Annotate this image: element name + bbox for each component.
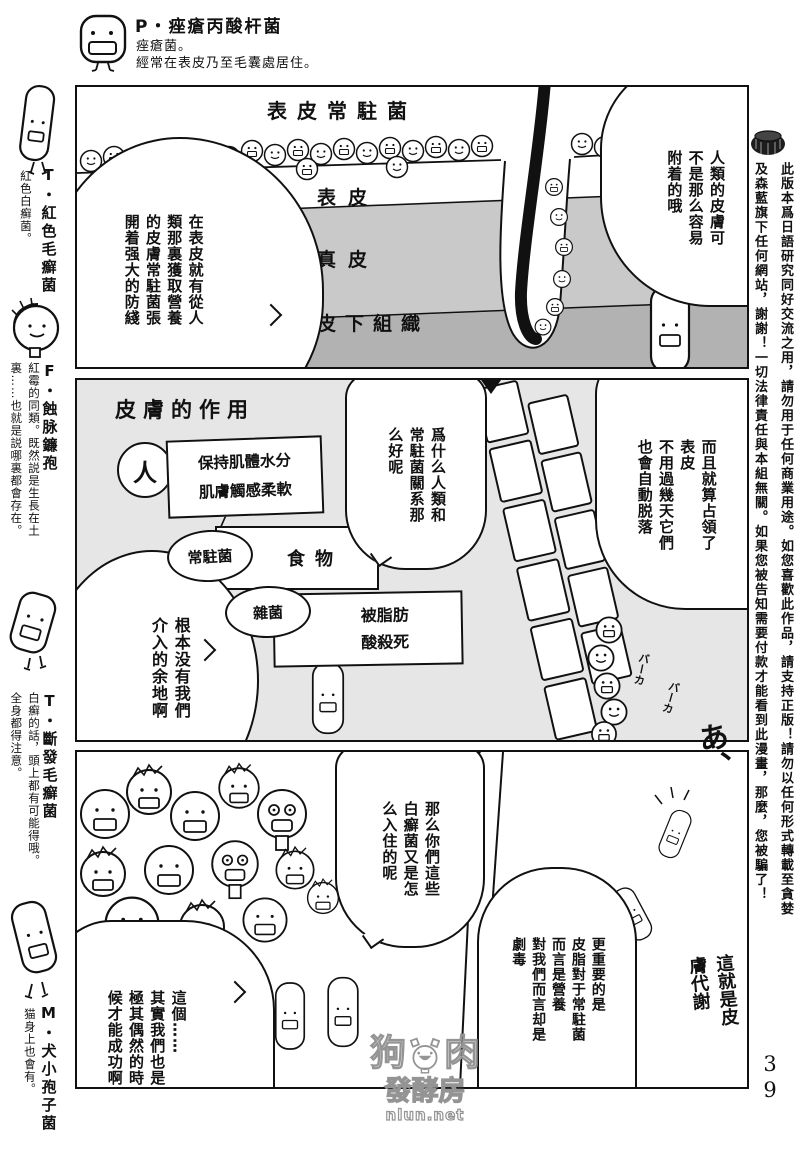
- t-tonsurans-microbe-icon: [8, 590, 60, 672]
- capsule-character: [313, 663, 343, 733]
- mascot-icon: [408, 1032, 442, 1076]
- margin-entry-title: M・犬小孢子菌: [40, 1004, 57, 1154]
- fusarium-microbe-icon: [6, 296, 62, 358]
- watermark-char: 狗: [370, 1036, 406, 1072]
- t-rubrum-microbe-icon: [16, 84, 58, 176]
- manga-page: P・痤瘡丙酸杆菌 痤瘡菌。 經常在表皮乃至毛囊處居住。 T・紅色毛癬菌 紅色白癬…: [0, 0, 800, 1163]
- m-canis-microbe-icon: [10, 896, 60, 1000]
- scanlation-disclaimer: 此版本爲日語研究同好交流之用，請勿用于任何商業用途。如您喜歡此作品，請支持正版！…: [744, 162, 798, 1028]
- label-subcutis: 皮下組織: [317, 309, 429, 336]
- watermark: 狗 肉 發酵房 nlun.net: [370, 1032, 480, 1123]
- label-epidermis: 表皮: [317, 183, 379, 210]
- node-human: 人: [117, 442, 173, 498]
- margin-entry-desc: 猫身上也會有。: [20, 1008, 38, 1138]
- panel-skin-cross-section: 表皮常駐菌 表皮 真皮 皮下組織 在表皮就有從人 類那裏獲取營養 的皮膚常駐菌張…: [75, 85, 749, 369]
- speech-bubble: 更重要的是 皮脂對于常駐菌 而言是營養 對我們而言却是 劇毒: [477, 867, 637, 1089]
- surprise-lines: [655, 787, 689, 804]
- handwritten-note: 這就是皮 膚代謝: [683, 953, 748, 1082]
- header-desc-line2: 經常在表皮乃至毛囊處居住。: [136, 52, 318, 71]
- speech-text: 更重要的是 皮脂對于常駐菌 而言是營養 對我們而言却是 劇毒: [507, 937, 606, 1042]
- margin-entry-desc: 紅色白癬菌。: [16, 170, 34, 310]
- panel-skin-function: 皮膚的作用 人 保持肌體水分 肌膚觸感柔軟 食物 常駐菌 被脂肪 酸殺死 雜菌 …: [75, 378, 749, 742]
- human-effect-box: 保持肌體水分 肌膚觸感柔軟: [166, 435, 325, 518]
- page-number: 39: [758, 1052, 782, 1122]
- header-title: P・痤瘡丙酸杆菌: [135, 12, 282, 37]
- watermark-char: 肉: [444, 1036, 480, 1072]
- speech-bubble: 爲什么人類和 常駐菌關系那 么好呢: [345, 378, 487, 570]
- chart-title: 皮膚的作用: [115, 394, 255, 424]
- hair-follicle: [500, 87, 572, 348]
- margin-entry-title: F・蝕脉鐮孢: [41, 362, 58, 622]
- margin-entry-desc: 紅霉的同類。既然説是生長在土 裏……也就是説哪裏都會存在。: [4, 362, 42, 587]
- watermark-url: nlun.net: [370, 1108, 480, 1123]
- speech-text: 那么你們這些 白癬菌又是怎 么入住的呢: [378, 801, 442, 897]
- p-acnes-microbe-icon: [78, 14, 128, 72]
- speech-bubble: 而且就算占領了 表皮 不用過幾天它們 也會自動脱落: [595, 378, 749, 610]
- speech-bubble: 那么你們這些 白癬菌又是怎 么入住的呢: [335, 750, 485, 948]
- label-surface-flora: 表皮常駐菌: [267, 95, 417, 124]
- margin-entry-desc: 白癬的話，頭上都有可能得哦。 全身都得注意。: [4, 692, 42, 907]
- speech-bubble: 這個…… 其實我們也是 極其偶然的時 候才能成功啊: [75, 920, 275, 1089]
- watermark-text: 發酵房: [370, 1078, 480, 1105]
- speech-text: 爲什么人類和 常駐菌關系那 么好呢: [384, 427, 448, 523]
- label-dermis: 真皮: [317, 245, 379, 272]
- speech-text: 在表皮就有從人 類那裏獲取營養 的皮膚常駐菌張 開着强大的防綫: [120, 214, 205, 326]
- straw-bundle-icon: [748, 126, 788, 158]
- speech-text: 人類的皮膚可 不是那么容易 附着的哦: [663, 150, 727, 246]
- speech-text: 這個…… 其實我們也是 極其偶然的時 候才能成功啊: [103, 990, 188, 1086]
- speech-text: 而且就算占領了 表皮 不用過幾天它們 也會自動脱落: [633, 439, 718, 551]
- speech-text: 根本没有我們 介入的余地啊: [146, 617, 191, 719]
